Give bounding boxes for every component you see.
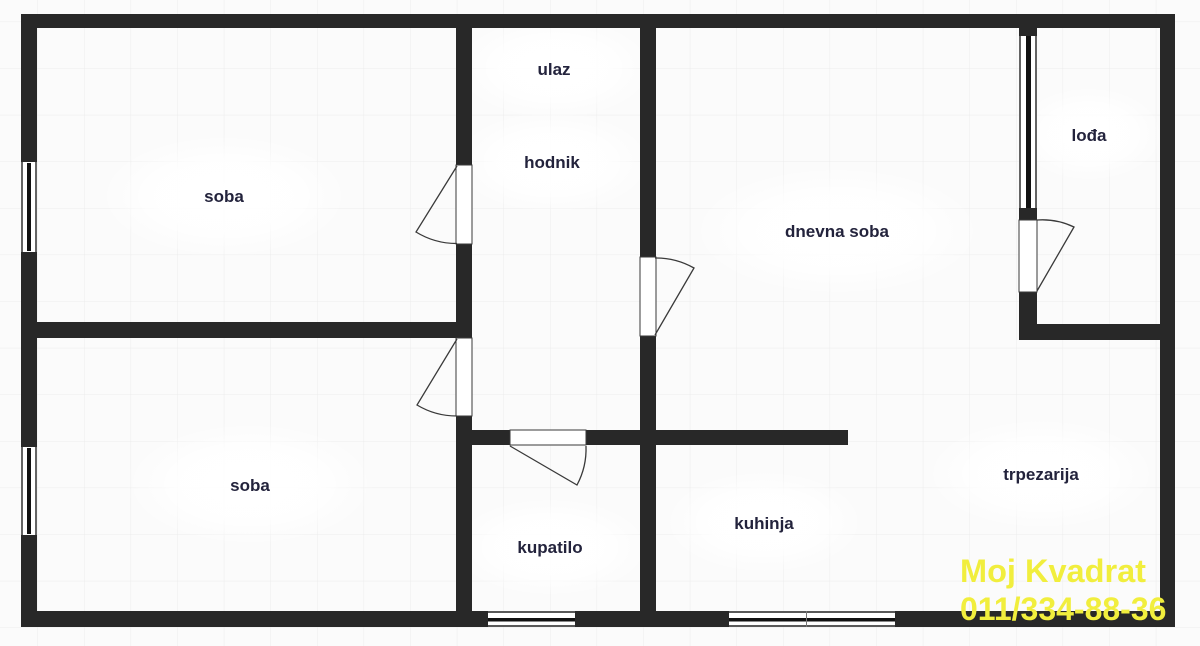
svg-text:lođa: lođa xyxy=(1072,126,1107,145)
svg-text:ulaz: ulaz xyxy=(537,60,570,79)
svg-text:kupatilo: kupatilo xyxy=(517,538,582,557)
svg-text:dnevna soba: dnevna soba xyxy=(785,222,889,241)
svg-text:soba: soba xyxy=(204,187,244,206)
svg-text:Moj Kvadrat: Moj Kvadrat xyxy=(960,553,1146,589)
svg-text:hodnik: hodnik xyxy=(524,153,580,172)
svg-text:soba: soba xyxy=(230,476,270,495)
svg-text:kuhinja: kuhinja xyxy=(734,514,794,533)
svg-text:trpezarija: trpezarija xyxy=(1003,465,1079,484)
svg-text:011/334-88-36: 011/334-88-36 xyxy=(960,591,1166,627)
